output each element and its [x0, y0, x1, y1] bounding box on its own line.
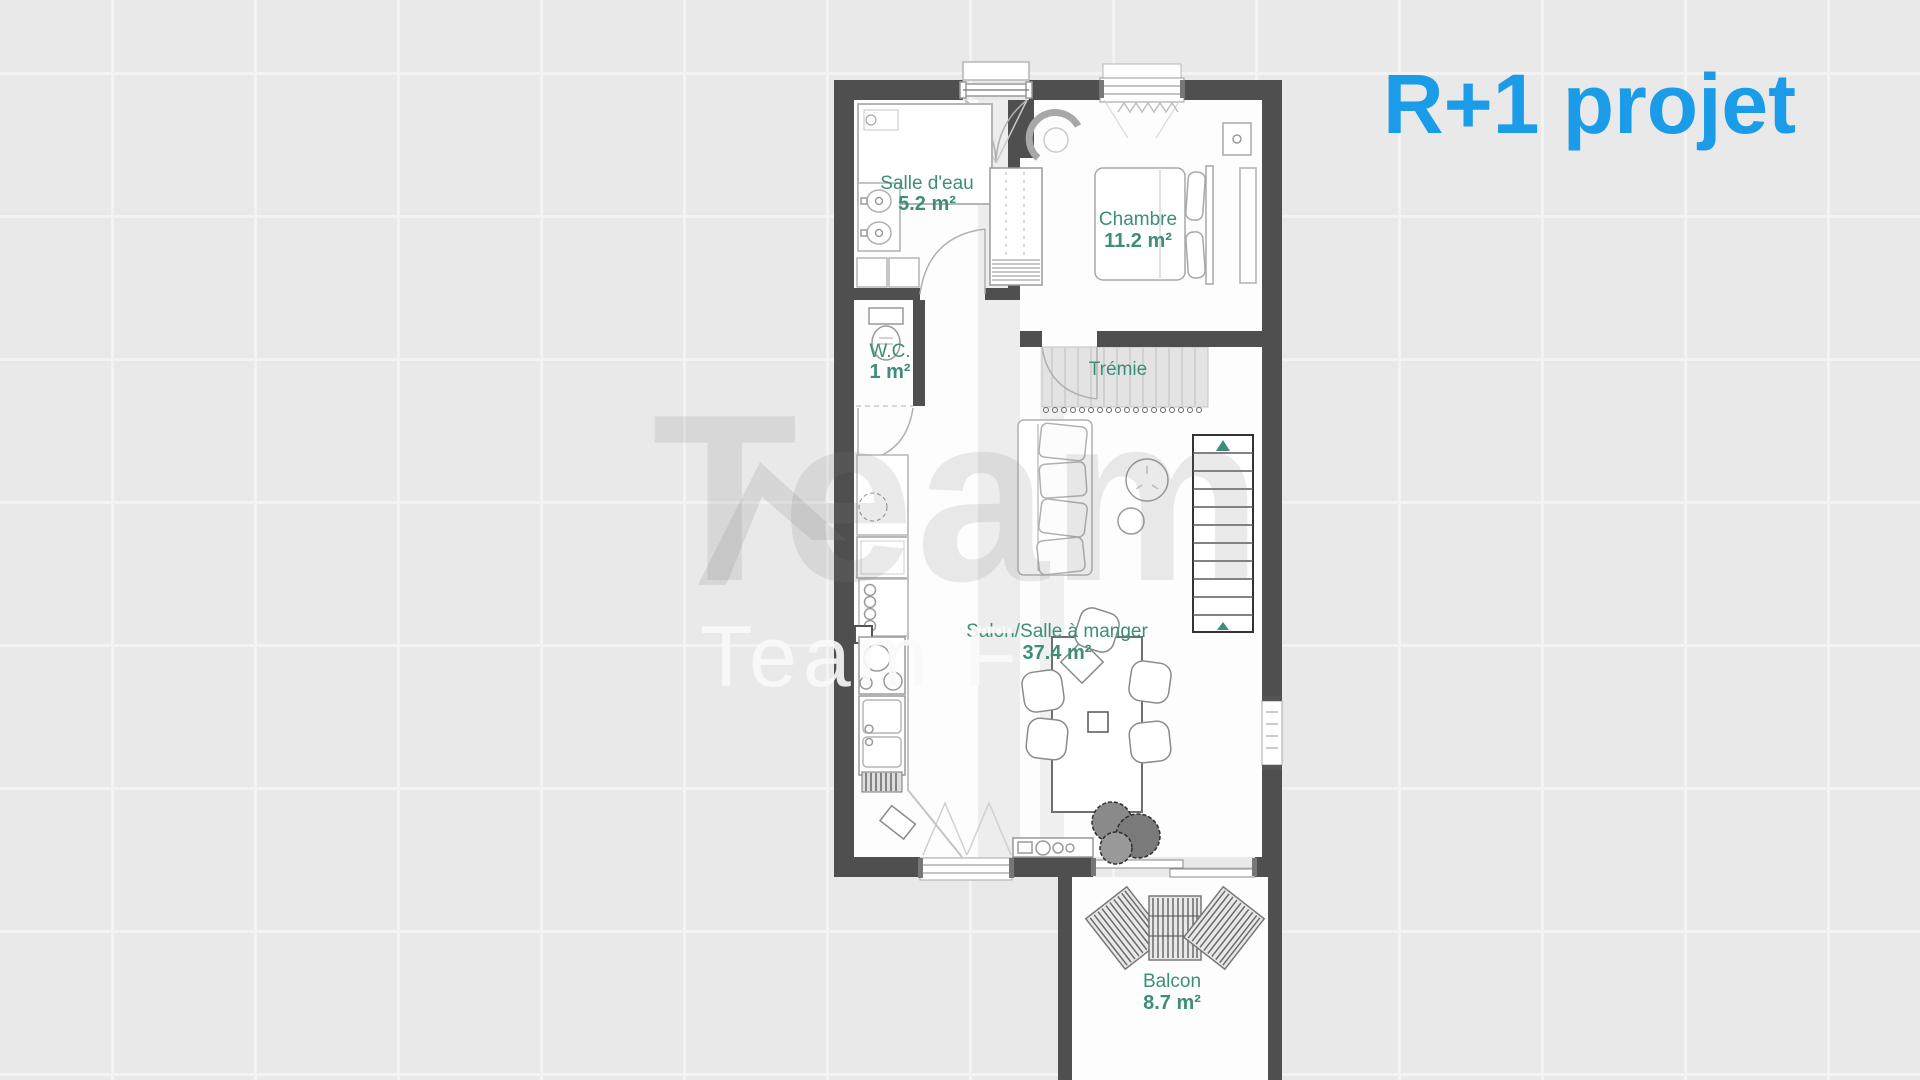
- room-label-wc: W.C.: [869, 341, 910, 362]
- fridge: [857, 537, 908, 578]
- room-label-tremie: Trémie: [1089, 359, 1147, 380]
- room-area-chambre: 11.2 m²: [1104, 230, 1172, 252]
- dishwasher-grate: [862, 772, 902, 792]
- staircase: [1193, 435, 1253, 632]
- balcony-wall-right: [1268, 877, 1282, 1080]
- room-label-chambre: Chambre: [1099, 209, 1177, 230]
- room-area-salle-deau: 5.2 m²: [898, 193, 956, 215]
- wall-wc: [913, 300, 925, 406]
- floor-plan-svg: Salle d'eau 5.2 m² W.C. 1 m² Chambre 11.…: [0, 0, 1920, 1080]
- room-label-salle-deau: Salle d'eau: [880, 173, 973, 194]
- room-area-salon: 37.4 m²: [1023, 642, 1092, 664]
- room-area-balcon: 8.7 m²: [1143, 992, 1201, 1014]
- stove: [859, 637, 905, 694]
- window-right-wall: [1262, 696, 1282, 770]
- wardrobe: [990, 168, 1042, 285]
- kitchen-cabinet: [857, 455, 908, 535]
- floor-plan-page: Salle d'eau 5.2 m² W.C. 1 m² Chambre 11.…: [0, 0, 1920, 1080]
- room-area-wc: 1 m²: [869, 361, 910, 383]
- sideboard: [1013, 838, 1093, 857]
- sofa: [1018, 420, 1092, 575]
- room-label-salon: Salon/Salle à manger: [966, 621, 1148, 642]
- room-label-balcon: Balcon: [1143, 971, 1201, 992]
- page-title: R+1 projet: [1383, 56, 1796, 153]
- balcony-wall-left: [1058, 877, 1072, 1080]
- kitchen-sink: [859, 696, 905, 775]
- wall-chambre-sud: [1097, 331, 1282, 347]
